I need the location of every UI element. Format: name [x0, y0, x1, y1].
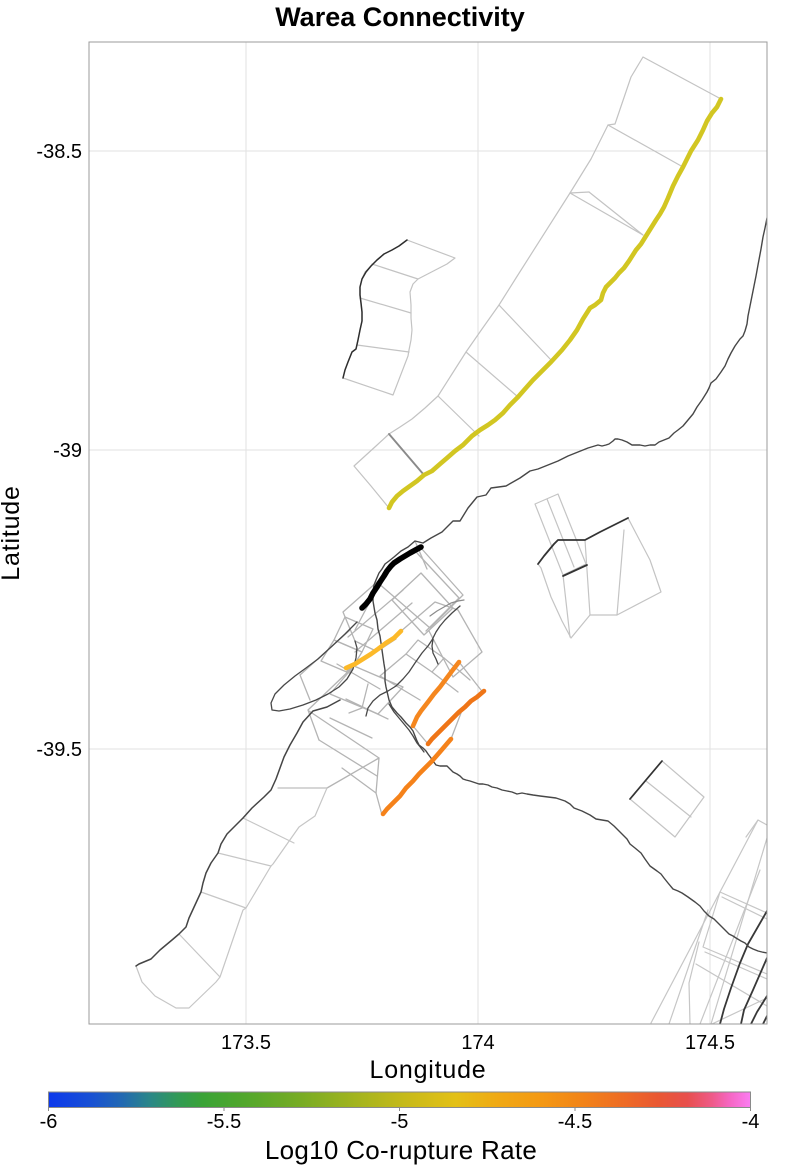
- svg-text:Longitude: Longitude: [369, 1056, 486, 1084]
- svg-text:-5: -5: [391, 1111, 409, 1133]
- svg-text:Latitude: Latitude: [0, 485, 25, 580]
- svg-text:-4: -4: [742, 1111, 760, 1133]
- svg-text:174: 174: [461, 1032, 494, 1054]
- svg-text:-39.5: -39.5: [36, 739, 82, 761]
- svg-text:174.5: 174.5: [685, 1032, 735, 1054]
- svg-text:Log10 Co-rupture Rate: Log10 Co-rupture Rate: [265, 1135, 537, 1165]
- svg-text:-39: -39: [53, 440, 82, 462]
- svg-text:Warea Connectivity: Warea Connectivity: [275, 2, 525, 32]
- svg-text:-38.5: -38.5: [36, 141, 82, 163]
- svg-text:-6: -6: [40, 1111, 58, 1133]
- svg-text:-4.5: -4.5: [558, 1111, 592, 1133]
- svg-text:173.5: 173.5: [221, 1032, 271, 1054]
- svg-text:-5.5: -5.5: [207, 1111, 241, 1133]
